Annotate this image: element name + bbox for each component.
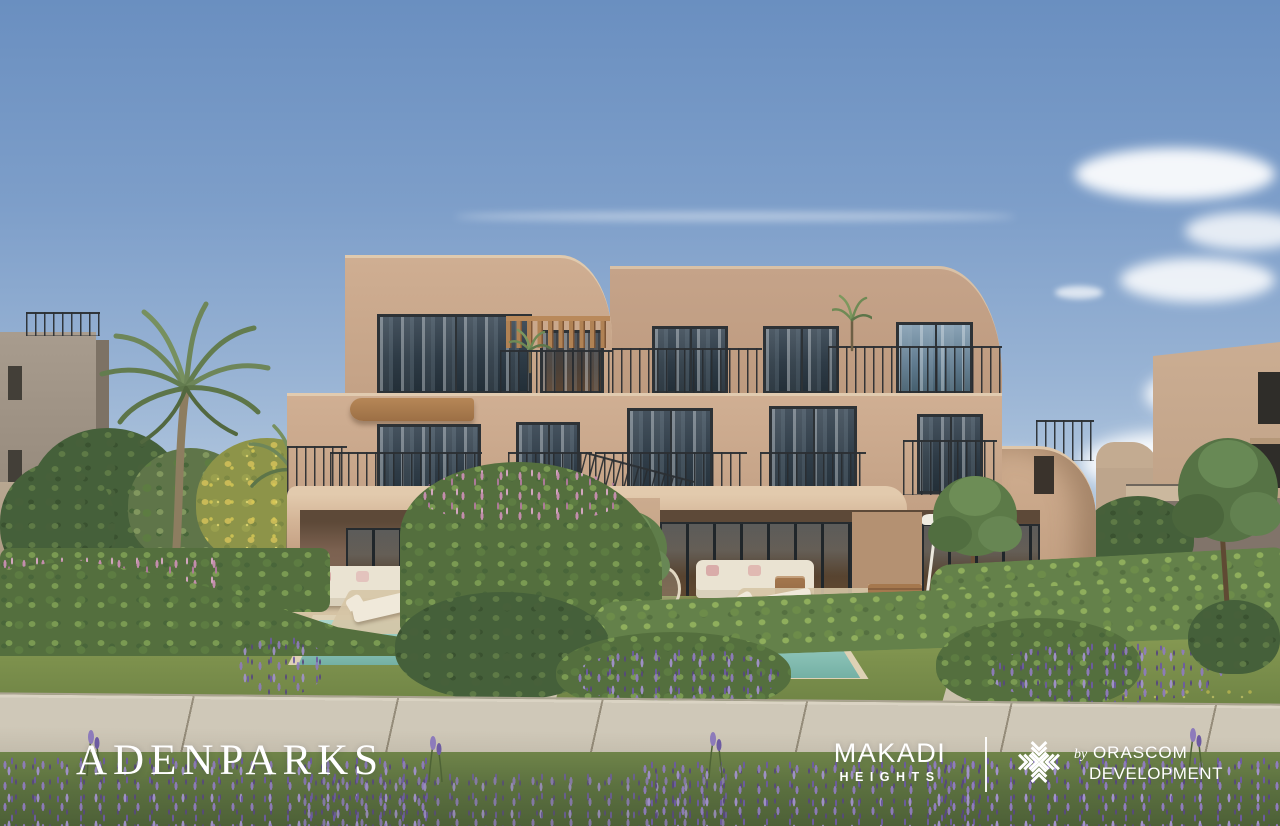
window-slot xyxy=(1034,456,1054,494)
lavender-sprig xyxy=(700,730,730,778)
wooden-awning xyxy=(350,398,474,421)
purple-flowers xyxy=(236,636,326,696)
cloud-wisp xyxy=(455,212,1015,221)
pillow xyxy=(706,565,719,576)
cloud xyxy=(1120,258,1275,302)
orascom-name: ORASCOM xyxy=(1093,743,1188,762)
garden-tree xyxy=(1168,418,1280,623)
orascom-development-logo: by ORASCOM DEVELOPMENT xyxy=(1074,744,1223,782)
lavender-sprig xyxy=(420,734,450,782)
logo-divider xyxy=(985,737,987,792)
orascom-logo-line2: DEVELOPMENT xyxy=(1089,765,1223,782)
makadi-logo-line1: MAKADI xyxy=(824,740,956,767)
garden-bush xyxy=(1188,600,1280,674)
cloud xyxy=(1075,148,1275,200)
makadi-logo-line2: HEIGHTS xyxy=(824,771,956,784)
architectural-render: ADENPARKS MAKADI HEIGHTS by ORASCOM DEVE… xyxy=(0,0,1280,826)
pillow xyxy=(356,571,369,582)
orascom-logo-icon xyxy=(1018,741,1060,783)
makadi-heights-logo: MAKADI HEIGHTS xyxy=(824,740,956,784)
pillow xyxy=(748,565,761,576)
cloud-small xyxy=(1055,286,1103,299)
right-neighbor-window xyxy=(1258,372,1280,424)
orascom-logo-line1: by ORASCOM xyxy=(1074,744,1223,762)
pink-flower-spikes xyxy=(420,468,625,524)
left-neighbor-window xyxy=(8,366,22,400)
adenparks-wordmark: ADENPARKS xyxy=(76,736,384,785)
orascom-by: by xyxy=(1074,747,1087,762)
purple-flowers xyxy=(988,642,1223,704)
balcony-palm xyxy=(832,290,872,352)
